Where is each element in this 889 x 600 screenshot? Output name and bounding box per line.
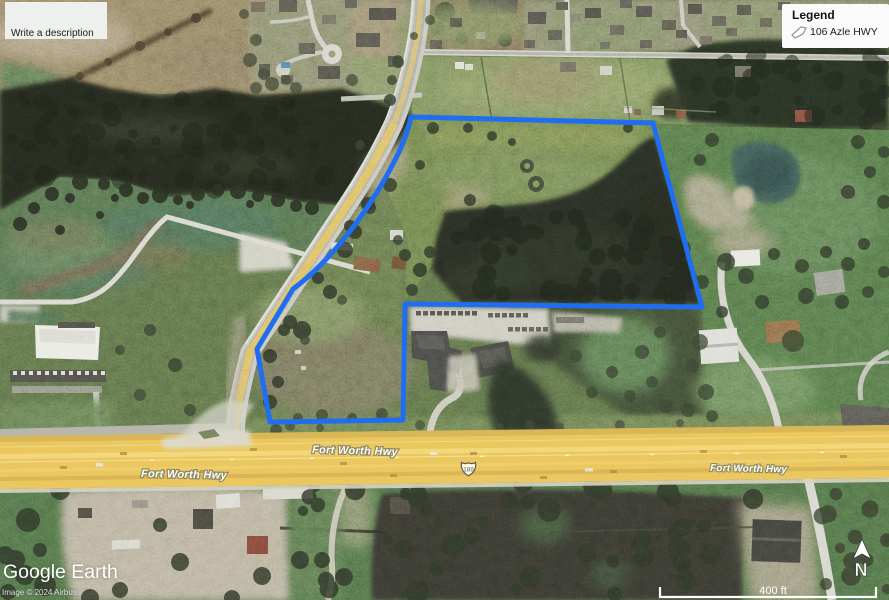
svg-text:N: N (855, 560, 868, 580)
svg-text:180: 180 (463, 467, 474, 474)
svg-text:Fort Worth Hwy: Fort Worth Hwy (141, 468, 228, 482)
svg-text:400 ft: 400 ft (759, 585, 787, 597)
svg-text:Fort Worth Hwy: Fort Worth Hwy (710, 463, 787, 475)
svg-text:Fort Worth Hwy: Fort Worth Hwy (312, 444, 399, 458)
